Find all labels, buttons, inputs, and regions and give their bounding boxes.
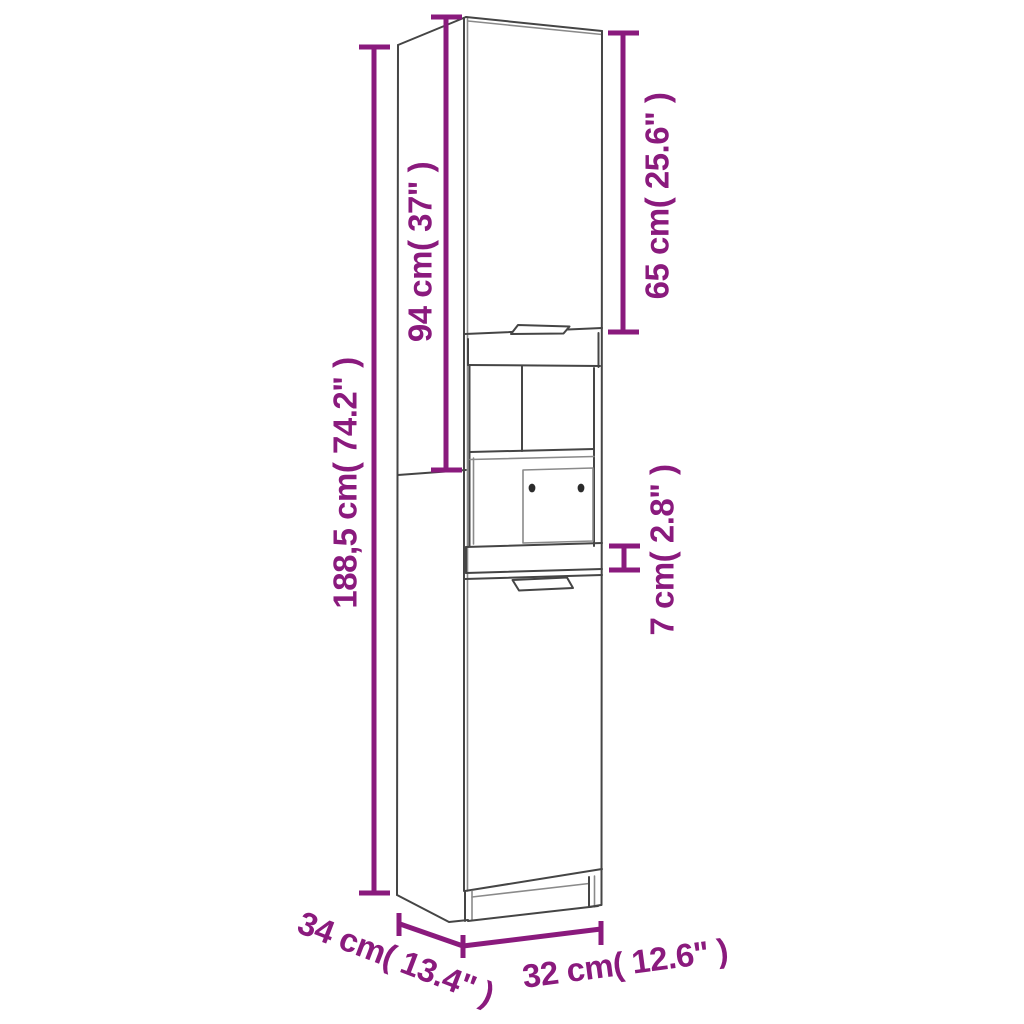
top-door xyxy=(465,325,602,334)
bottom-door xyxy=(465,575,602,891)
bottom-door-handle xyxy=(513,578,574,591)
total-height-label: 188,5 cm( 74.2" ) xyxy=(327,357,364,608)
back-panel xyxy=(523,468,593,543)
cabinet-drawing xyxy=(397,17,602,922)
product-dimension-image: 188,5 cm( 74.2" ) 94 cm( 37" ) 65 cm( 25… xyxy=(0,0,1024,1024)
upper-rail xyxy=(468,333,600,367)
dimension-rail: 7 cm( 2.8" ) xyxy=(609,464,681,635)
open-shelf-section xyxy=(470,366,595,546)
dimension-total-height: 188,5 cm( 74.2" ) xyxy=(327,47,390,893)
back-panel-hole-right xyxy=(578,484,585,493)
dimension-width: 32 cm( 12.6" ) xyxy=(463,921,730,995)
lower-rail xyxy=(466,543,602,573)
upper-section-label: 94 cm( 37" ) xyxy=(402,162,439,342)
width-label: 32 cm( 12.6" ) xyxy=(520,931,730,995)
back-panel-hole-left xyxy=(529,484,536,493)
dimension-top-door: 65 cm( 25.6" ) xyxy=(608,33,676,332)
plinth xyxy=(465,876,601,921)
dimension-upper-section: 94 cm( 37" ) xyxy=(402,17,462,470)
top-door-label: 65 cm( 25.6" ) xyxy=(639,93,676,300)
rail-label: 7 cm( 2.8" ) xyxy=(644,464,681,635)
dimension-diagram: 188,5 cm( 74.2" ) 94 cm( 37" ) 65 cm( 25… xyxy=(0,0,1024,1024)
top-door-handle xyxy=(511,325,570,334)
cabinet-front-frame xyxy=(464,17,602,905)
